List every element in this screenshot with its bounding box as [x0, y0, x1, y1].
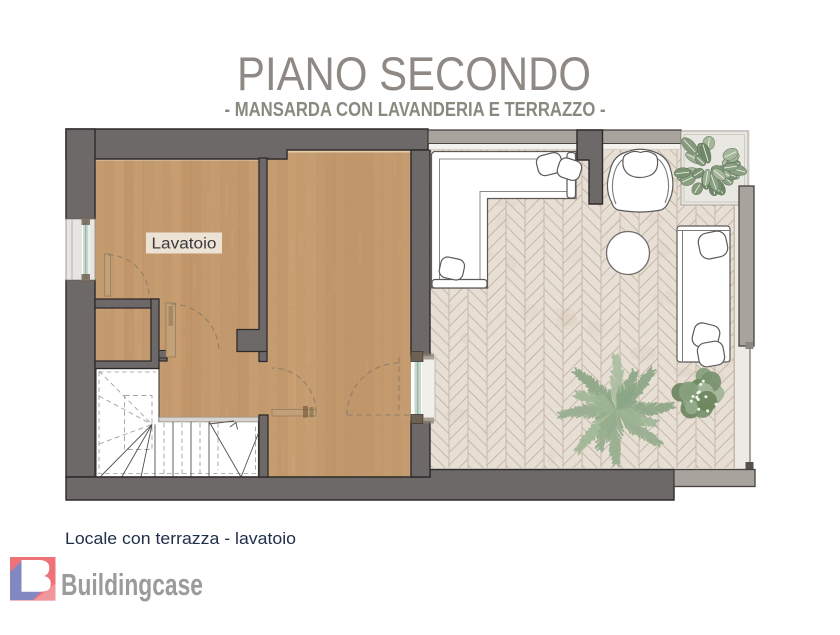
svg-text:PIANO SECONDO: PIANO SECONDO: [237, 47, 591, 100]
svg-text:Lavatoio: Lavatoio: [152, 236, 217, 253]
svg-text:Buildingcase: Buildingcase: [61, 567, 203, 602]
svg-text:Locale con terrazza - lavatoi: Locale con terrazza - lavatoio: [65, 530, 296, 548]
svg-text:- MANSARDA CON LAVANDERIA E TE: - MANSARDA CON LAVANDERIA E TERRAZZO -: [225, 99, 606, 121]
